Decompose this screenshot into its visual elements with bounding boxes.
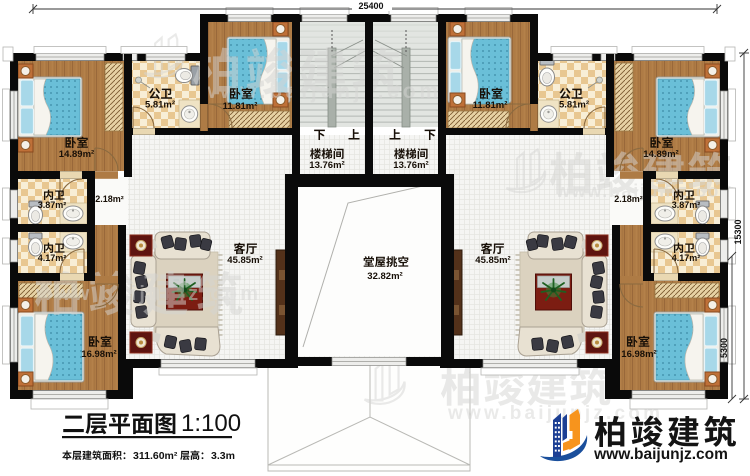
- svg-text:13.76m²: 13.76m²: [309, 160, 344, 171]
- svg-text:3.87m²: 3.87m²: [38, 200, 67, 210]
- svg-text:5.81m²: 5.81m²: [145, 100, 175, 111]
- svg-text:11.81m²: 11.81m²: [473, 100, 508, 111]
- svg-text:3.3m: 3.3m: [211, 450, 235, 462]
- svg-text:16.98m²: 16.98m²: [621, 349, 656, 360]
- svg-text:3.87m²: 3.87m²: [672, 200, 701, 210]
- svg-text:11.81m²: 11.81m²: [223, 101, 258, 112]
- svg-text:15300: 15300: [733, 219, 743, 244]
- svg-text:www.baijunjz.com: www.baijunjz.com: [593, 446, 728, 463]
- svg-text:5300: 5300: [719, 338, 729, 358]
- svg-text:13.76m²: 13.76m²: [393, 160, 428, 171]
- svg-text:25400: 25400: [358, 1, 383, 11]
- svg-text:14.89m²: 14.89m²: [59, 149, 94, 160]
- svg-text:4.17m²: 4.17m²: [672, 253, 701, 263]
- svg-text:45.85m²: 45.85m²: [227, 255, 262, 266]
- svg-text:2.18m²: 2.18m²: [95, 194, 124, 204]
- svg-text:5.81m²: 5.81m²: [559, 100, 589, 111]
- svg-text:311.60m²: 311.60m²: [133, 450, 178, 462]
- svg-text:1:100: 1:100: [181, 410, 241, 437]
- svg-text:16.98m²: 16.98m²: [81, 349, 116, 360]
- svg-text:4.17m²: 4.17m²: [38, 253, 67, 263]
- svg-text:2.18m²: 2.18m²: [614, 194, 643, 204]
- svg-text:45.85m²: 45.85m²: [475, 255, 510, 266]
- svg-text:32.82m²: 32.82m²: [367, 271, 402, 282]
- svg-text:14.89m²: 14.89m²: [643, 149, 678, 160]
